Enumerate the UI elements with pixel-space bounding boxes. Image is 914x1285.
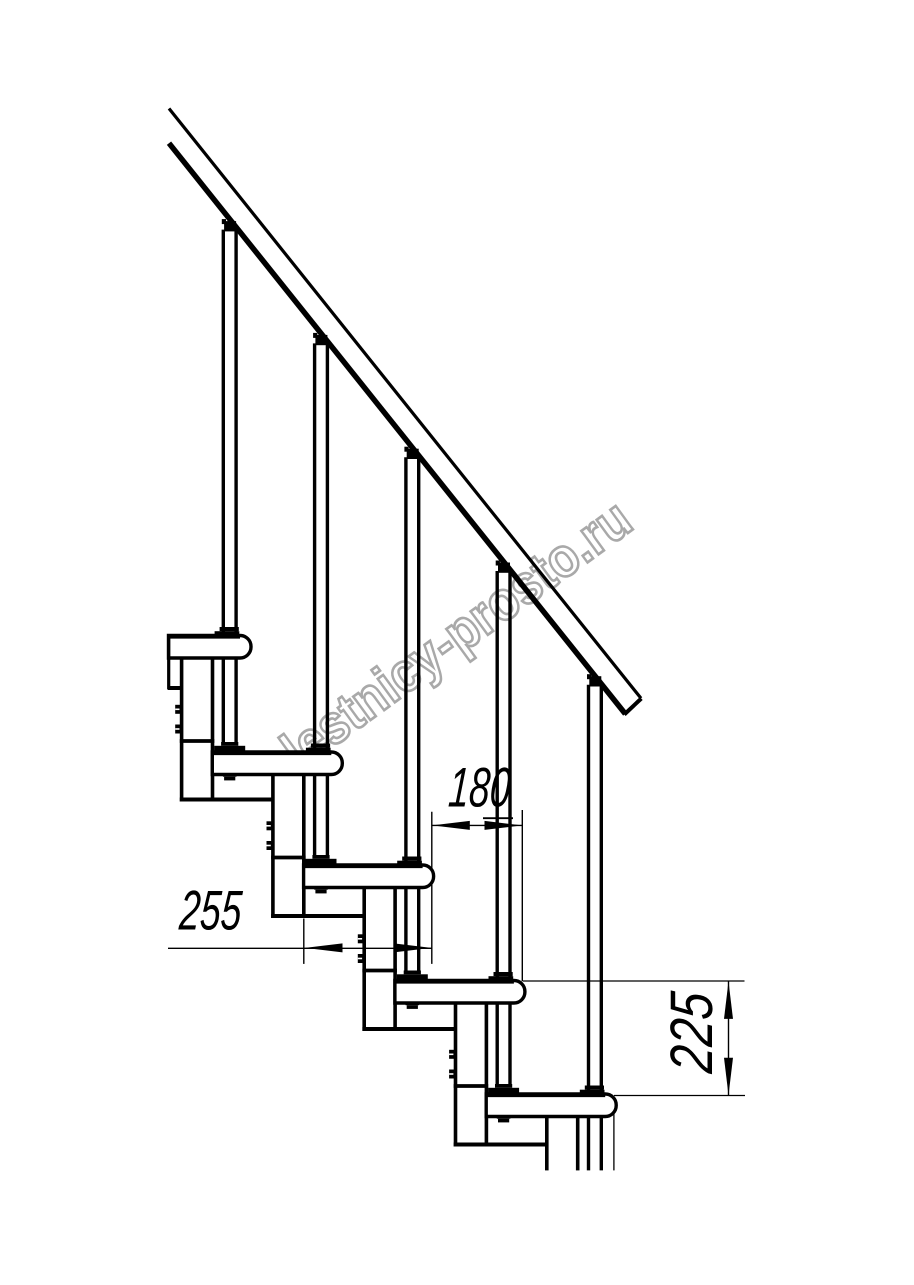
svg-text:255: 255 xyxy=(177,880,244,942)
svg-text:180: 180 xyxy=(447,757,514,819)
svg-text:225: 225 xyxy=(658,989,725,1076)
